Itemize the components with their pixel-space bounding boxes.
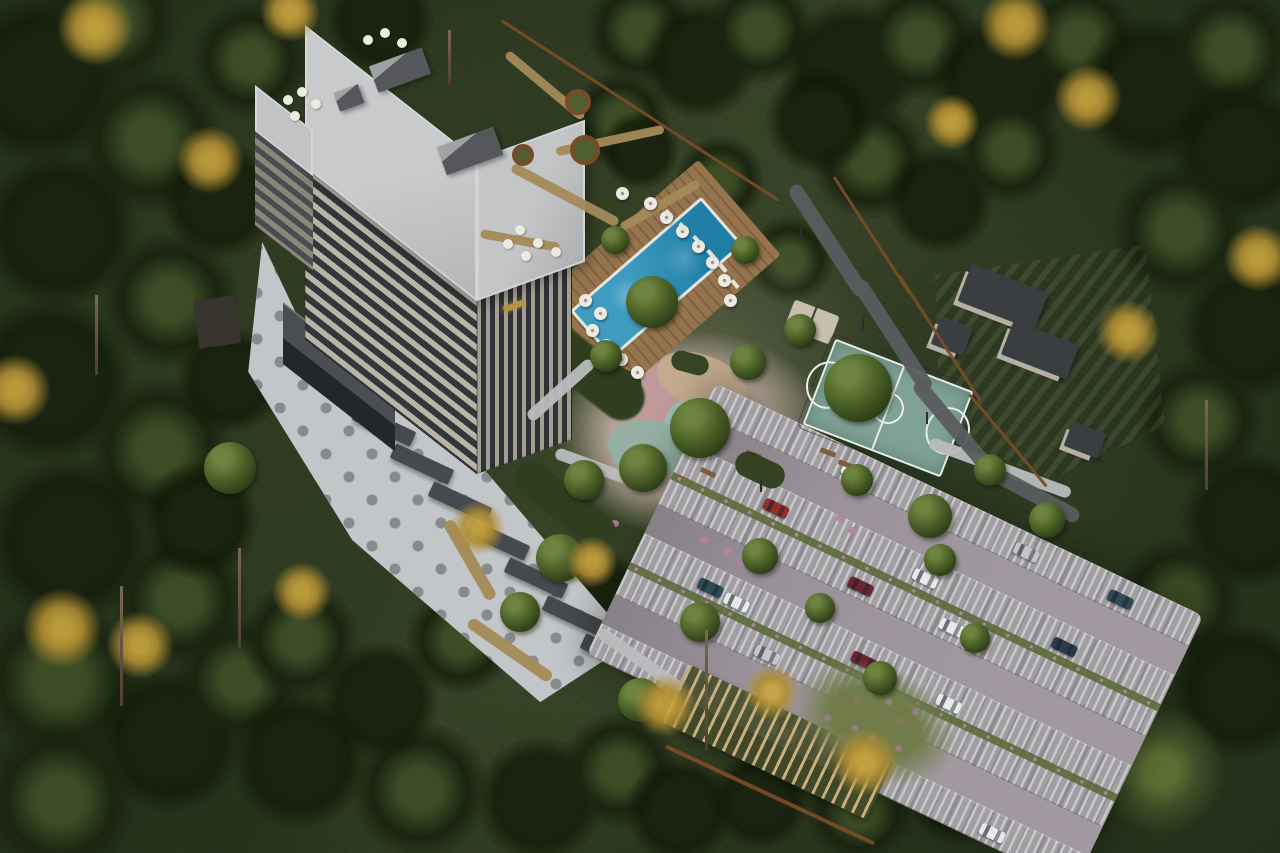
tree-canopy [908, 494, 952, 538]
autumn-tree [260, 0, 320, 42]
tree-canopy [784, 314, 816, 346]
tree-canopy [204, 442, 256, 494]
tree-trunk [448, 30, 451, 85]
tree-trunk [95, 295, 98, 375]
autumn-tree [22, 588, 102, 668]
autumn-tree [924, 94, 980, 150]
tree-canopy [1029, 502, 1065, 538]
tree-trunk [120, 586, 123, 706]
tree-canopy [731, 236, 759, 264]
tree-canopy [730, 344, 766, 380]
tree-trunk [705, 630, 708, 750]
autumn-tree [106, 611, 174, 679]
autumn-tree [176, 126, 244, 194]
tree-canopy [670, 398, 730, 458]
tree-canopy [841, 464, 873, 496]
autumn-tree [566, 536, 618, 588]
tree-layer [0, 0, 1280, 853]
tree-canopy [601, 226, 629, 254]
autumn-tree [0, 354, 51, 426]
tree-canopy [805, 593, 835, 623]
aerial-render-scene [0, 0, 1280, 853]
tree-canopy [924, 544, 956, 576]
tree-canopy [564, 460, 604, 500]
tree-canopy [974, 454, 1006, 486]
tree-canopy [500, 592, 540, 632]
autumn-tree [57, 0, 133, 66]
autumn-tree [744, 664, 800, 720]
tree-canopy [626, 276, 678, 328]
autumn-tree [979, 0, 1051, 61]
tree-canopy [863, 661, 897, 695]
autumn-tree [1224, 224, 1280, 292]
tree-trunk [1205, 400, 1208, 490]
tree-canopy [680, 602, 720, 642]
autumn-tree [831, 728, 899, 796]
tree-canopy [590, 340, 622, 372]
autumn-tree [1054, 64, 1122, 132]
autumn-tree [272, 562, 332, 622]
autumn-tree [450, 500, 506, 556]
tree-canopy [960, 623, 990, 653]
tree-canopy [619, 444, 667, 492]
autumn-tree [633, 673, 697, 737]
tree-canopy [742, 538, 778, 574]
autumn-tree [1096, 300, 1160, 364]
tree-trunk [238, 548, 241, 648]
tree-canopy [824, 354, 892, 422]
